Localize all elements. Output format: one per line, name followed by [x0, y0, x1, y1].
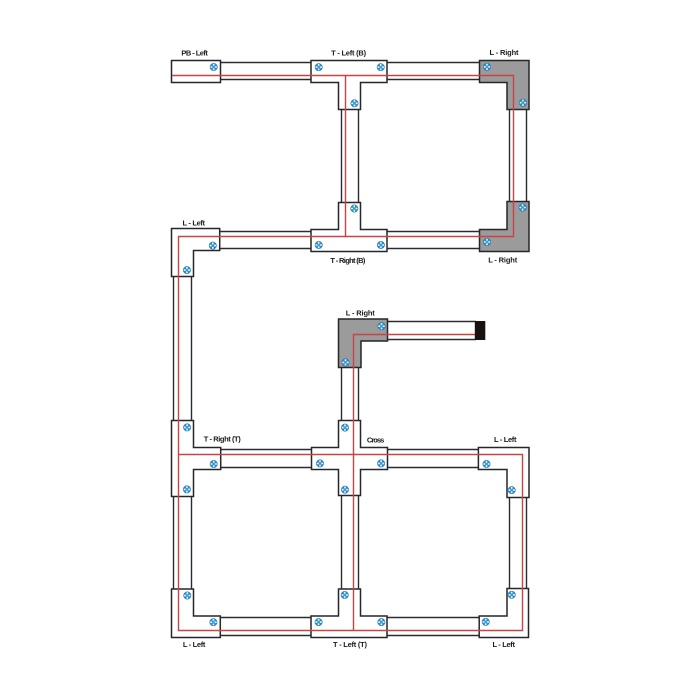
svg-text:L - Left: L - Left	[494, 435, 517, 444]
svg-text:T - Left (T): T - Left (T)	[333, 640, 368, 649]
svg-text:T - Right (T): T - Right (T)	[204, 435, 242, 444]
svg-text:L - Left: L - Left	[183, 218, 206, 227]
svg-text:L - Right: L - Right	[346, 309, 376, 318]
svg-text:L - Left: L - Left	[492, 640, 515, 649]
svg-text:L - Right: L - Right	[488, 256, 518, 265]
svg-text:T - Left (B): T - Left (B)	[331, 48, 367, 57]
svg-text:L - Right: L - Right	[490, 48, 520, 57]
svg-text:L - Left: L - Left	[183, 640, 206, 649]
svg-text:PB - Left: PB - Left	[181, 48, 208, 57]
svg-text:T - Right (B): T - Right (B)	[330, 256, 366, 265]
svg-text:Cross: Cross	[367, 435, 385, 444]
